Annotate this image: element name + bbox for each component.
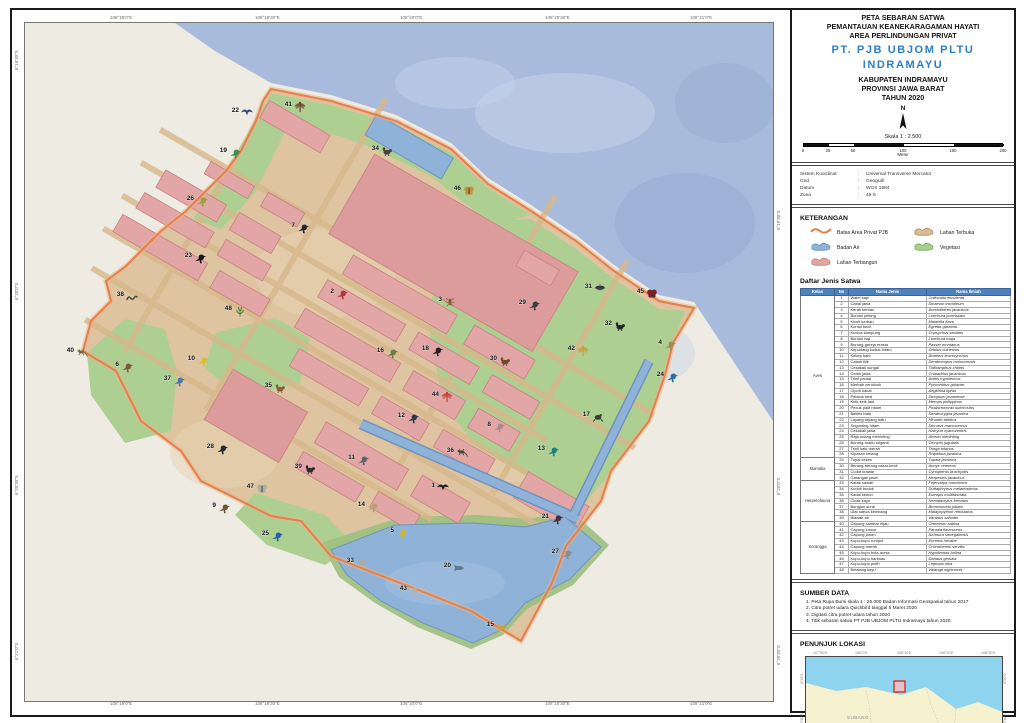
inset-coordinate-label: 6°20'S: [800, 674, 804, 685]
svg-text:37: 37: [164, 375, 172, 382]
coordinate-label: 6°19'30"S: [14, 50, 19, 70]
svg-text:27: 27: [552, 548, 560, 555]
svg-text:47: 47: [247, 483, 255, 490]
subtitle-line: PROVINSI JAWA BARAT: [800, 84, 1006, 93]
legend-section: KETERANGAN Batas Area Privat PJBBadan Ai…: [792, 210, 1014, 273]
sources-heading: SUMBER DATA: [800, 590, 1006, 597]
locator-heading: PENUNJUK LOKASI: [800, 641, 1006, 648]
species-column-header: No: [835, 289, 849, 296]
coordinate-label: 108°19'30"E: [255, 15, 280, 20]
species-section: Daftar Jenis Satwa KelasNoNama JenisNama…: [792, 273, 1014, 577]
svg-text:46: 46: [454, 185, 462, 192]
svg-text:7: 7: [291, 222, 295, 229]
map-metadata: Sistem Koordinat:Universal Transverse Me…: [792, 168, 1014, 202]
svg-text:33: 33: [347, 557, 355, 564]
svg-text:35: 35: [265, 382, 273, 389]
metadata-row: Datum:WGS 1984: [800, 185, 1006, 192]
svg-text:9: 9: [212, 502, 216, 509]
svg-text:30: 30: [490, 355, 498, 362]
coordinate-label: 108°21'0"E: [690, 15, 712, 20]
svg-text:20: 20: [444, 562, 452, 569]
svg-text:24: 24: [657, 371, 665, 378]
inset-study-area-marker: [894, 681, 905, 692]
svg-text:16: 16: [377, 347, 385, 354]
coordinate-label: 6°21'0"S: [14, 643, 19, 660]
coordinate-label: 108°20'30"E: [545, 15, 570, 20]
svg-text:31: 31: [585, 283, 593, 290]
svg-text:10: 10: [188, 355, 196, 362]
svg-text:5: 5: [390, 527, 394, 534]
coordinate-label: 6°20'0"S: [14, 283, 19, 300]
svg-text:32: 32: [605, 320, 613, 327]
inset-coordinate-label: 108°0'E: [855, 651, 868, 655]
species-heading: Daftar Jenis Satwa: [800, 278, 1006, 285]
svg-text:3: 3: [438, 296, 442, 303]
svg-text:4: 4: [658, 339, 662, 346]
inset-coordinate-label: 6°30'S: [1003, 714, 1007, 723]
svg-text:23: 23: [185, 252, 193, 259]
title-line: PEMANTAUAN KEANEKARAGAMAN HAYATI: [800, 22, 1006, 31]
north-label: N: [901, 105, 906, 112]
svg-text:1: 1: [431, 482, 435, 489]
inset-map: SUBANG INDRAMAYU SUMEDANG 107°50'E107°50…: [805, 656, 1001, 723]
metadata-row: Sistem Koordinat:Universal Transverse Me…: [800, 171, 1006, 178]
svg-text:21: 21: [542, 513, 550, 520]
svg-text:44: 44: [432, 391, 440, 398]
metadata-row: Grid:Geografi: [800, 178, 1006, 185]
divider: [792, 630, 1014, 634]
title-block: PETA SEBARAN SATWA PEMANTAUAN KEANEKARAG…: [792, 10, 1014, 160]
species-column-header: Kelas: [801, 289, 835, 296]
svg-text:15: 15: [487, 621, 495, 628]
coordinate-label: 108°19'0"E: [110, 15, 132, 20]
map-canvas: 1234567891011121314151617181920212223242…: [25, 23, 773, 701]
north-arrow: N: [800, 105, 1006, 132]
coordinate-label: 6°20'30"S: [14, 475, 19, 495]
svg-text:26: 26: [187, 195, 195, 202]
svg-text:38: 38: [117, 291, 125, 298]
species-column-header: Nama Jenis: [849, 289, 927, 296]
svg-text:14: 14: [358, 501, 366, 508]
svg-text:39: 39: [295, 463, 303, 470]
svg-text:19: 19: [220, 147, 228, 154]
map-sheet: 1234567891011121314151617181920212223242…: [0, 0, 1024, 723]
coordinate-label: 108°19'30"E: [255, 701, 280, 706]
inset-label-subang: SUBANG: [847, 715, 869, 720]
coordinate-label: 6°20'30"S: [776, 645, 781, 665]
svg-text:17: 17: [583, 411, 591, 418]
svg-text:8: 8: [487, 421, 491, 428]
divider: [792, 204, 1014, 208]
legend-item: Lahan Terbangun: [800, 255, 903, 270]
source-line: 4. Titik sebaran satwa PT PJB UBJOM PLTU…: [800, 619, 1006, 625]
subtitle-line: TAHUN 2020: [800, 93, 1006, 102]
coordinate-label: 108°20'0"E: [400, 15, 422, 20]
scale-bar: 02550100150200 Meter: [803, 143, 1003, 157]
svg-text:6: 6: [115, 361, 119, 368]
species-column-header: Nama Ilmiah: [927, 289, 1011, 296]
species-table: KelasNoNama JenisNama Ilmiah Aves1Walet …: [800, 288, 1011, 574]
sources-section: SUMBER DATA 1. Peta Rupa Bumi skala 1 : …: [792, 585, 1014, 629]
legend-item: Vegetasi: [903, 240, 1006, 255]
legend-heading: KETERANGAN: [800, 215, 1006, 222]
title-line: AREA PERLINDUNGAN PRIVAT: [800, 31, 1006, 40]
svg-text:29: 29: [519, 299, 527, 306]
svg-text:2: 2: [330, 288, 334, 295]
svg-text:22: 22: [232, 107, 240, 114]
north-arrow-icon: [895, 112, 911, 132]
svg-text:13: 13: [538, 445, 546, 452]
main-map: 1234567891011121314151617181920212223242…: [24, 22, 774, 702]
svg-text:40: 40: [67, 347, 75, 354]
svg-text:45: 45: [637, 288, 645, 295]
scale-text: Skala 1 : 2.500: [800, 134, 1006, 140]
svg-text:28: 28: [207, 443, 215, 450]
locator-section: PENUNJUK LOKASI SUBANG INDRAMAYU SUMEDAN…: [792, 636, 1014, 723]
coordinate-label: 108°21'0"E: [690, 701, 712, 706]
built-swatch: [810, 254, 832, 272]
svg-text:25: 25: [262, 530, 270, 537]
divider: [792, 579, 1014, 583]
inset-coordinate-label: 107°50'E: [813, 651, 828, 655]
inset-coordinate-label: 6°20'S: [1003, 674, 1007, 685]
svg-text:11: 11: [348, 454, 355, 461]
metadata-row: Zona:49 S: [800, 192, 1006, 199]
veg-swatch: [913, 239, 935, 257]
company-title: PT. PJB UBJOM PLTU INDRAMAYU: [800, 43, 1006, 73]
subtitle-line: KABUPATEN INDRAMAYU: [800, 75, 1006, 84]
svg-text:42: 42: [568, 345, 576, 352]
divider: [792, 162, 1014, 166]
coordinate-label: 108°20'0"E: [400, 701, 422, 706]
svg-text:34: 34: [372, 145, 380, 152]
inset-coordinate-label: 108°10'E: [897, 651, 912, 655]
title-line: PETA SEBARAN SATWA: [800, 13, 1006, 22]
coordinate-label: 6°20'0"S: [776, 478, 781, 495]
coordinate-label: 6°19'30"S: [776, 210, 781, 230]
coordinate-label: 108°20'30"E: [545, 701, 570, 706]
coordinate-label: 108°19'0"E: [110, 701, 132, 706]
svg-text:41: 41: [285, 101, 293, 108]
inset-coordinate-label: 108°30'E: [981, 651, 996, 655]
info-panel: PETA SEBARAN SATWA PEMANTAUAN KEANEKARAG…: [790, 8, 1016, 713]
svg-text:36: 36: [447, 447, 455, 454]
svg-text:48: 48: [225, 305, 233, 312]
svg-text:18: 18: [422, 345, 430, 352]
inset-coordinate-label: 6°30'S: [800, 714, 804, 723]
svg-text:12: 12: [398, 412, 406, 419]
svg-text:43: 43: [400, 585, 408, 592]
inset-coordinate-label: 108°20'E: [939, 651, 954, 655]
